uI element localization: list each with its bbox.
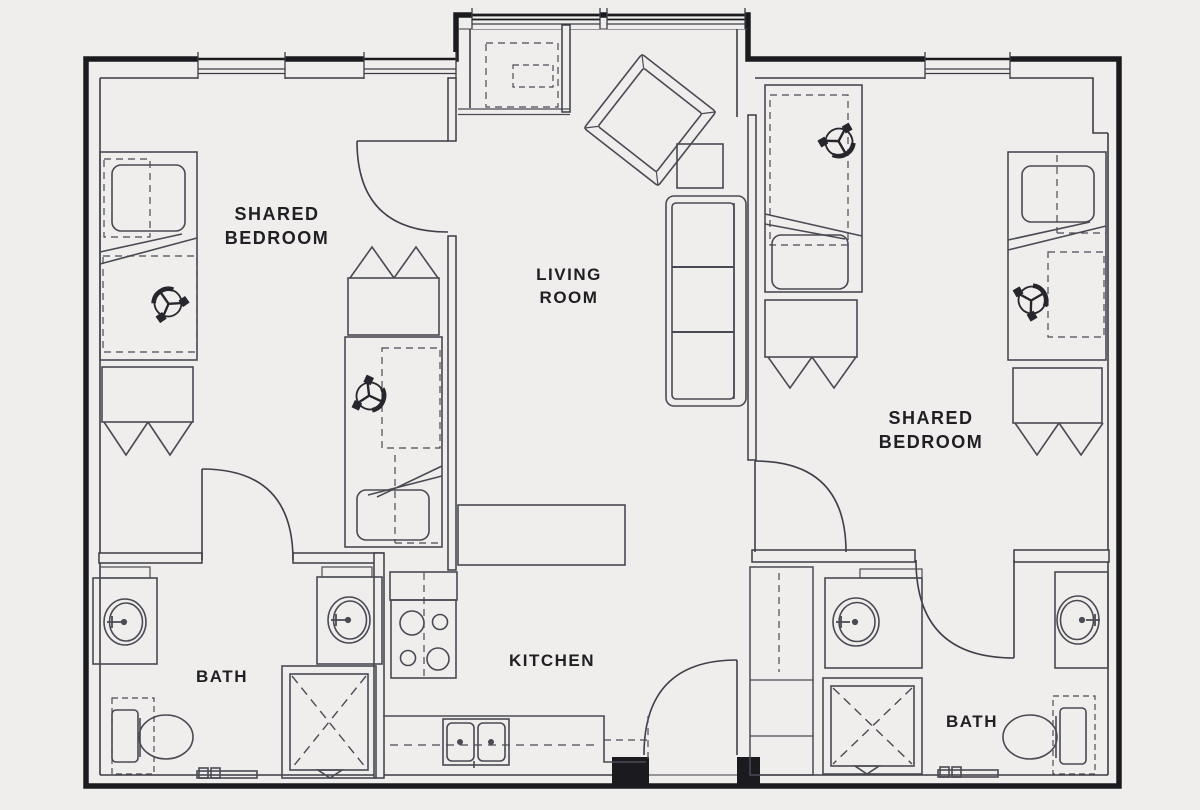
vanity bbox=[1055, 572, 1108, 668]
wardrobe-icon bbox=[765, 300, 857, 388]
toilet-icon bbox=[1003, 696, 1095, 774]
exterior-wall-inner-lines bbox=[100, 29, 1108, 775]
label-bath-right: BATH bbox=[946, 712, 998, 731]
wall-block bbox=[737, 757, 760, 786]
side-table-icon bbox=[677, 144, 723, 188]
door-swing-icon bbox=[357, 141, 448, 232]
door-swing-icon bbox=[916, 560, 1014, 658]
pillow-icon bbox=[357, 490, 429, 540]
pillow-icon bbox=[1022, 166, 1094, 222]
label-living-room2: ROOM bbox=[540, 288, 599, 307]
label-shared-bedroom-left: SHARED bbox=[234, 204, 319, 224]
kitchen-sink-icon bbox=[443, 719, 509, 768]
wall-entry-closet bbox=[562, 25, 570, 112]
window-icon bbox=[364, 52, 456, 79]
wall-left-bath-top-left bbox=[99, 553, 202, 563]
bathroom-sink-icon bbox=[833, 598, 879, 646]
door-swing-icon bbox=[755, 461, 846, 552]
interior-walls bbox=[99, 25, 1109, 778]
vanity bbox=[93, 567, 157, 664]
sofa-icon bbox=[666, 196, 746, 406]
desk-outline bbox=[382, 348, 440, 448]
towel-bar-icon bbox=[197, 768, 257, 778]
window-icon bbox=[607, 8, 745, 29]
desk-outline bbox=[1048, 252, 1104, 337]
wall-left-bedroom-divider-lower bbox=[448, 236, 456, 570]
wardrobe-icon bbox=[1013, 368, 1103, 455]
wardrobe-icon bbox=[102, 367, 193, 455]
door-swing-icon bbox=[644, 660, 737, 755]
bed-icon bbox=[1008, 152, 1106, 360]
bathroom-sink-icon bbox=[1057, 596, 1100, 644]
desk-outline bbox=[770, 95, 848, 245]
window-icon bbox=[198, 52, 285, 79]
pillow-icon bbox=[112, 165, 185, 231]
vanity bbox=[317, 567, 382, 664]
console-table-icon bbox=[458, 505, 625, 565]
shower-icon bbox=[823, 678, 922, 774]
vanity bbox=[825, 569, 922, 668]
shower-icon bbox=[282, 666, 376, 778]
floor-plan-svg: SHARED BEDROOM LIVING ROOM SHARED BEDROO… bbox=[0, 0, 1200, 810]
window-icon bbox=[925, 52, 1010, 79]
wall-right-bath-top-right bbox=[1014, 550, 1109, 562]
wall-right-bedroom-divider bbox=[748, 115, 756, 460]
bed-icon bbox=[765, 85, 862, 292]
door-swing-icon bbox=[202, 469, 293, 560]
pillow-icon bbox=[772, 235, 848, 289]
label-living-room: LIVING bbox=[536, 265, 602, 284]
wall-right-bath-top-left bbox=[752, 550, 915, 562]
label-shared-bedroom-right: SHARED bbox=[888, 408, 973, 428]
window-icon bbox=[472, 8, 600, 29]
label-kitchen: KITCHEN bbox=[509, 651, 595, 670]
bed-icon bbox=[100, 152, 197, 360]
wardrobe-icon bbox=[348, 247, 439, 335]
floor-plan-page: SHARED BEDROOM LIVING ROOM SHARED BEDROO… bbox=[0, 0, 1200, 810]
label-shared-bedroom-left2: BEDROOM bbox=[225, 228, 330, 248]
hall-closet bbox=[750, 567, 813, 775]
lounge-chair-icon bbox=[584, 54, 716, 186]
label-bath-left: BATH bbox=[196, 667, 248, 686]
bath-right-room bbox=[823, 569, 1108, 777]
kitchen bbox=[383, 572, 648, 768]
right-bedroom bbox=[765, 85, 1106, 455]
living-room bbox=[458, 43, 746, 565]
closet-icon bbox=[458, 43, 570, 115]
label-shared-bedroom-right2: BEDROOM bbox=[879, 432, 984, 452]
toilet-icon bbox=[112, 698, 193, 774]
wall-left-bath-top-right bbox=[293, 553, 383, 563]
bed-icon bbox=[345, 337, 442, 547]
closet-icon bbox=[750, 567, 813, 775]
counter bbox=[383, 716, 646, 762]
windows bbox=[198, 8, 1010, 79]
bathroom-sink-icon bbox=[104, 599, 146, 645]
bathroom-sink-icon bbox=[328, 597, 370, 643]
wall-left-bedroom-divider-upper bbox=[448, 78, 456, 141]
